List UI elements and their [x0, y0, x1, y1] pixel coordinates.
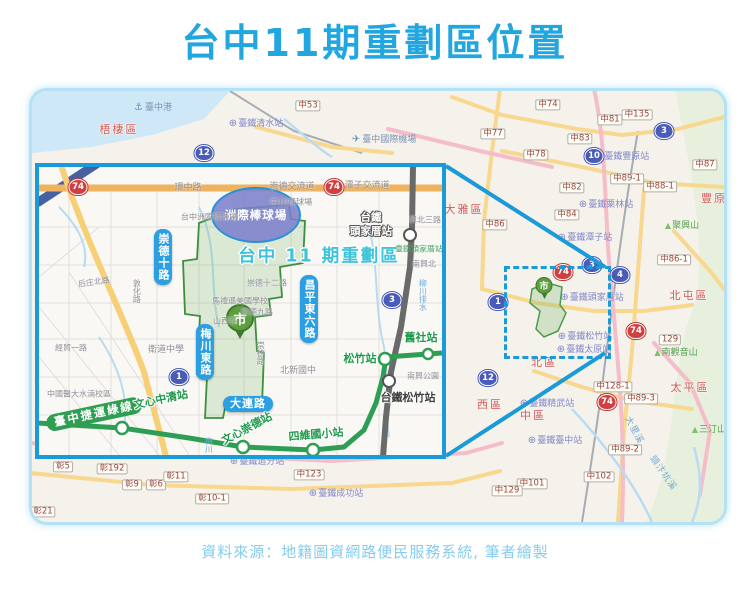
district-label: 西區 — [477, 399, 503, 411]
rail-station-label: ⊕臺鐵清水站 — [229, 118, 283, 130]
road-number-label: 彰21 — [30, 506, 55, 517]
inset-label: 馬禮遜美國學校 — [212, 298, 268, 307]
rail-station-icon: ⊕ — [579, 199, 587, 210]
poi-label: ✈臺中國際機場 — [352, 134, 416, 146]
road-number-label: 彰5 — [53, 461, 73, 472]
mountain-icon: ▲ — [692, 425, 698, 434]
road-number-label: 中87 — [692, 159, 717, 170]
rail-station-label: ⊕臺鐵潭子站 — [558, 232, 612, 244]
road-number-label: 中89-1 — [610, 173, 644, 184]
district-label: 豐原 — [701, 193, 727, 205]
mountain-icon: ▲ — [665, 221, 671, 230]
inset-label: 山西路 — [213, 318, 237, 327]
inset-label: 梅川 — [204, 437, 213, 453]
road-number-label: 彰9 — [122, 479, 142, 490]
road-number-label: 中128-1 — [593, 381, 632, 392]
highway-shield: 12 — [195, 145, 214, 161]
mountain-icon: ▲ — [654, 348, 660, 357]
zoom-area-box — [504, 266, 611, 359]
road-number-label: 中81 — [597, 114, 622, 125]
road-number-label: 129 — [659, 334, 681, 345]
inset-label: 中國醫大水湳校區 — [47, 391, 111, 400]
road-number-label: 中135 — [622, 109, 653, 120]
road-number-label: 彰192 — [97, 463, 128, 474]
inset-label: 衛道中學 — [148, 346, 184, 356]
highway-shield: 4 — [611, 267, 630, 283]
inset-label: 台鐵 頭家厝站 — [350, 211, 392, 238]
road-number-label: 中82 — [559, 182, 584, 193]
highway-shield: 3 — [655, 123, 674, 139]
inset-label: 台鐵松竹站 — [381, 392, 436, 404]
highway-shield: 74 — [69, 179, 88, 195]
district-label: 大雅區 — [445, 204, 484, 216]
page-title: 台中11期重劃區位置 — [0, 12, 750, 67]
inset-map-content: 洲際棒球場 市 台中 11 期重劃區 環中路崇德交流道潭子交流道台中洲際棒球場中… — [39, 167, 442, 455]
anchor-icon: ⚓ — [134, 102, 143, 113]
inset-label: 北新國中 — [280, 367, 316, 377]
road-number-label: 中83 — [567, 133, 592, 144]
road-number-label: 中78 — [523, 149, 548, 160]
rail-station-label: ⊕臺鐵臺中站 — [528, 435, 582, 447]
pin-tail — [235, 330, 245, 339]
poi-label: ⚓臺中港 — [134, 102, 172, 114]
inset-label: 南興公園 — [407, 373, 439, 382]
rail-station-icon: ⊕ — [229, 118, 237, 129]
rail-station-label: ⊕臺鐵栗林站 — [579, 199, 633, 211]
inset-label: 崇德十路 — [154, 229, 172, 285]
road-number-label: 中84 — [554, 209, 579, 220]
inset-label: 潭子交流道 — [344, 182, 389, 192]
inset-map: 洲際棒球場 市 台中 11 期重劃區 環中路崇德交流道潭子交流道台中洲際棒球場中… — [35, 163, 446, 459]
inset-label: 台中洲際棒球場 — [181, 214, 237, 223]
inset-label: 崇德路 — [256, 341, 265, 365]
district-label: 梧棲區 — [100, 124, 139, 136]
road-number-label: 中88-1 — [643, 181, 677, 192]
rail-station-label: ⊕臺鐵精武站 — [520, 398, 574, 410]
inset-label: 柳川排水 — [418, 279, 427, 311]
road-number-label: 中123 — [294, 469, 325, 480]
rail-station-label: ⊕臺鐵成功站 — [309, 488, 363, 500]
road-number-label: 彰10-1 — [195, 493, 229, 504]
inset-label: 崇德交流道 — [269, 183, 314, 193]
inset-label: 環中路 — [174, 184, 201, 194]
mountain-label: ▲三汀山 — [692, 426, 726, 436]
railway-line — [383, 167, 413, 455]
inset-label: 臺鐵頭家厝站 — [395, 246, 443, 255]
highway-shield: 74 — [627, 323, 646, 339]
inset-label: 舊社站 — [405, 332, 438, 344]
inset-label: 昌平東六路 — [300, 275, 318, 343]
map-figure: 中53中74中81中135中77中83中78中87中89-1中88-1中82中8… — [29, 88, 727, 525]
highway-shield: 3 — [383, 292, 402, 308]
road-number-label: 中86 — [482, 219, 507, 230]
road-number-label: 中86-1 — [657, 254, 691, 265]
zone-title-label: 台中 11 期重劃區 — [238, 243, 400, 268]
district-label: 太平區 — [671, 382, 710, 394]
mountain-label: ▲聚興山 — [665, 222, 699, 232]
road-number-label: 中53 — [295, 100, 320, 111]
inset-label: 南興北 — [412, 261, 436, 270]
district-label: 中區 — [520, 410, 546, 422]
slide: 台中11期重劃區位置 — [0, 0, 750, 599]
road-number-label: 中102 — [584, 471, 615, 482]
rail-station-icon: ⊕ — [528, 435, 536, 446]
source-caption: 資料來源：地籍圖資網路便民服務系統, 筆者繪製 — [0, 541, 750, 562]
rail-station-icon: ⊕ — [558, 232, 566, 243]
highway-shield: 74 — [598, 394, 617, 410]
rail-station-icon: ⊕ — [520, 398, 528, 409]
district-label: 北屯區 — [670, 290, 709, 302]
inset-label: 經貿一路 — [55, 345, 87, 354]
highway-shield: 10 — [585, 148, 604, 164]
highway-shield: 1 — [170, 369, 189, 385]
road-number-label: 彰11 — [163, 471, 188, 482]
inset-label: 梅川東路 — [196, 324, 214, 380]
highway-shield: 74 — [325, 179, 344, 195]
mountain-label: ▲南觀音山 — [654, 349, 697, 359]
inset-label: 敦化路 — [132, 279, 141, 303]
rail-station-icon: ⊕ — [309, 488, 317, 499]
inset-label: 崇德九路 — [241, 309, 273, 318]
inset-label: 崇德十二路 — [247, 280, 287, 289]
inset-label: 大連路 — [223, 396, 273, 412]
highway-shield: 12 — [479, 370, 498, 386]
inset-label: 松竹站 — [344, 353, 377, 365]
road-number-label: 中74 — [535, 99, 560, 110]
inset-label: 興北三路 — [409, 217, 441, 226]
road-number-label: 中89-2 — [608, 444, 642, 455]
inset-label: 中10棒球場 — [270, 199, 312, 208]
road-number-label: 中129 — [492, 485, 523, 496]
road-number-label: 中89-3 — [624, 393, 658, 404]
road-number-label: 中77 — [480, 128, 505, 139]
airplane-icon: ✈ — [352, 134, 360, 145]
